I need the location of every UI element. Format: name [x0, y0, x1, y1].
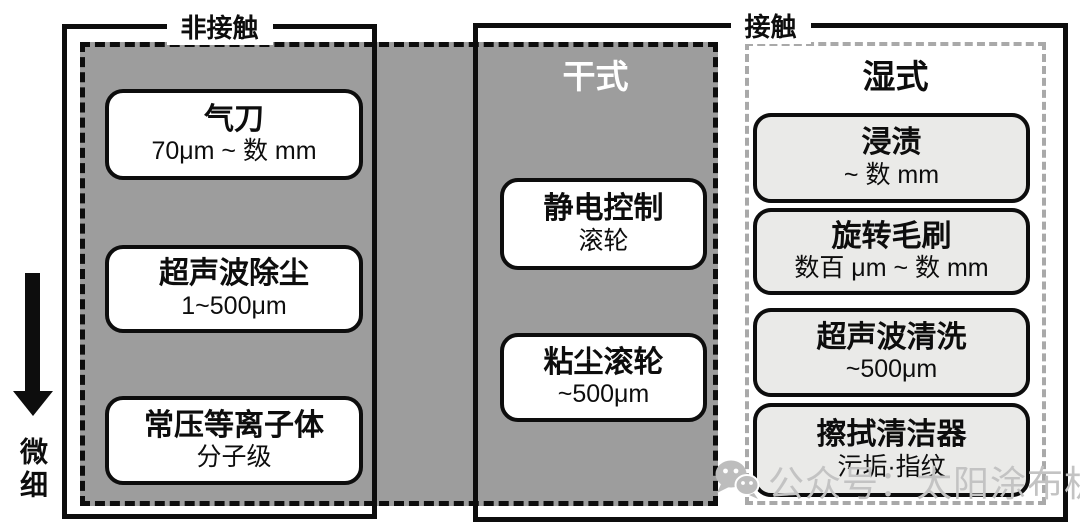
method-air-knife: 气刀 70μm ~ 数 mm	[105, 89, 363, 180]
method-atmospheric-plasma: 常压等离子体 分子级	[105, 396, 363, 485]
method-range: ~500μm	[558, 380, 650, 409]
method-ultrasonic-dust-removal: 超声波除尘 1~500μm	[105, 245, 363, 333]
method-name: 浸渍	[862, 126, 922, 161]
method-rotating-brush: 旋转毛刷 数百 μm ~ 数 mm	[753, 208, 1030, 295]
method-range: 1~500μm	[181, 292, 286, 321]
method-ultrasonic-cleaning: 超声波清洗 ~500μm	[753, 308, 1030, 397]
method-sticky-roller: 粘尘滚轮 ~500μm	[500, 333, 707, 422]
method-range: 数百 μm ~ 数 mm	[794, 254, 988, 283]
method-range: 污垢·指纹	[837, 453, 945, 482]
cleaning-methods-diagram: 非接触 接触 干式 湿式 气刀 70μm ~ 数 mm 超声波除尘 1~500μ…	[0, 0, 1080, 528]
method-dipping: 浸渍 ~ 数 mm	[753, 113, 1030, 203]
fineness-arrow-shaft	[25, 273, 40, 392]
non-contact-label: 非接触	[166, 8, 272, 45]
wet-region-title: 湿式	[745, 50, 1046, 98]
method-name: 气刀	[204, 103, 264, 138]
method-name: 擦拭清洁器	[817, 418, 967, 453]
method-range: 分子级	[196, 443, 271, 472]
method-name: 常压等离子体	[144, 409, 324, 444]
method-name: 超声波清洗	[817, 321, 967, 356]
method-range: ~ 数 mm	[844, 161, 939, 190]
method-name: 旋转毛刷	[832, 220, 952, 255]
method-range: 70μm ~ 数 mm	[151, 137, 316, 166]
method-range: ~500μm	[846, 355, 938, 384]
method-name: 超声波除尘	[159, 257, 309, 292]
method-name: 静电控制	[544, 192, 664, 227]
fineness-axis-label: 微细	[12, 437, 52, 503]
method-wipe-cleaner: 擦拭清洁器 污垢·指纹	[753, 403, 1030, 497]
method-static-control: 静电控制 滚轮	[500, 178, 707, 270]
contact-label: 接触	[730, 7, 810, 44]
dry-region-title: 干式	[473, 50, 718, 98]
method-range: 滚轮	[578, 227, 628, 256]
method-name: 粘尘滚轮	[544, 346, 664, 381]
fineness-arrow-head	[13, 391, 53, 416]
